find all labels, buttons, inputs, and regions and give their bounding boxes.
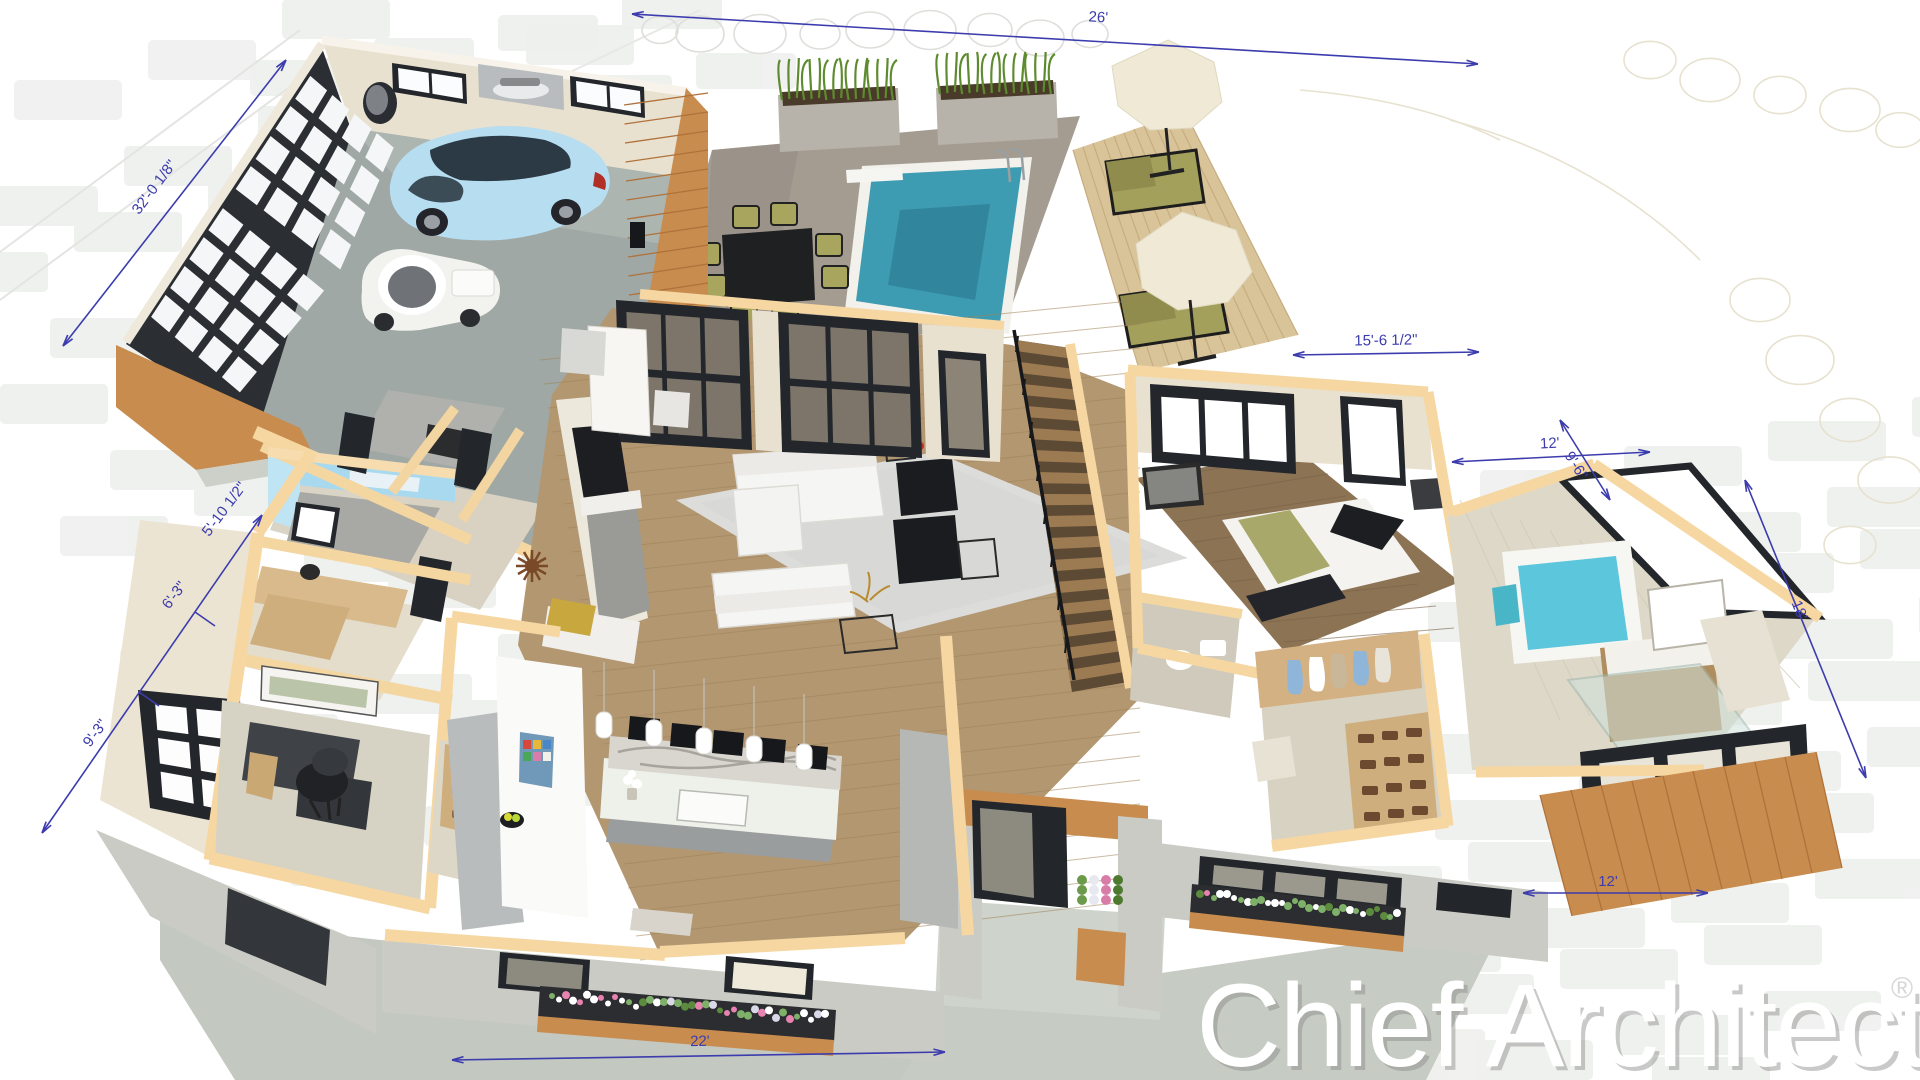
svg-text:22': 22' xyxy=(690,1033,710,1050)
svg-text:Chief Architect: Chief Architect xyxy=(1196,960,1920,1080)
svg-text:26': 26' xyxy=(1088,8,1109,26)
svg-text:15'-6 1/2": 15'-6 1/2" xyxy=(1354,331,1418,349)
svg-text:12': 12' xyxy=(1540,434,1561,452)
svg-text:®: ® xyxy=(1891,972,1913,1005)
svg-text:12': 12' xyxy=(1598,873,1618,890)
